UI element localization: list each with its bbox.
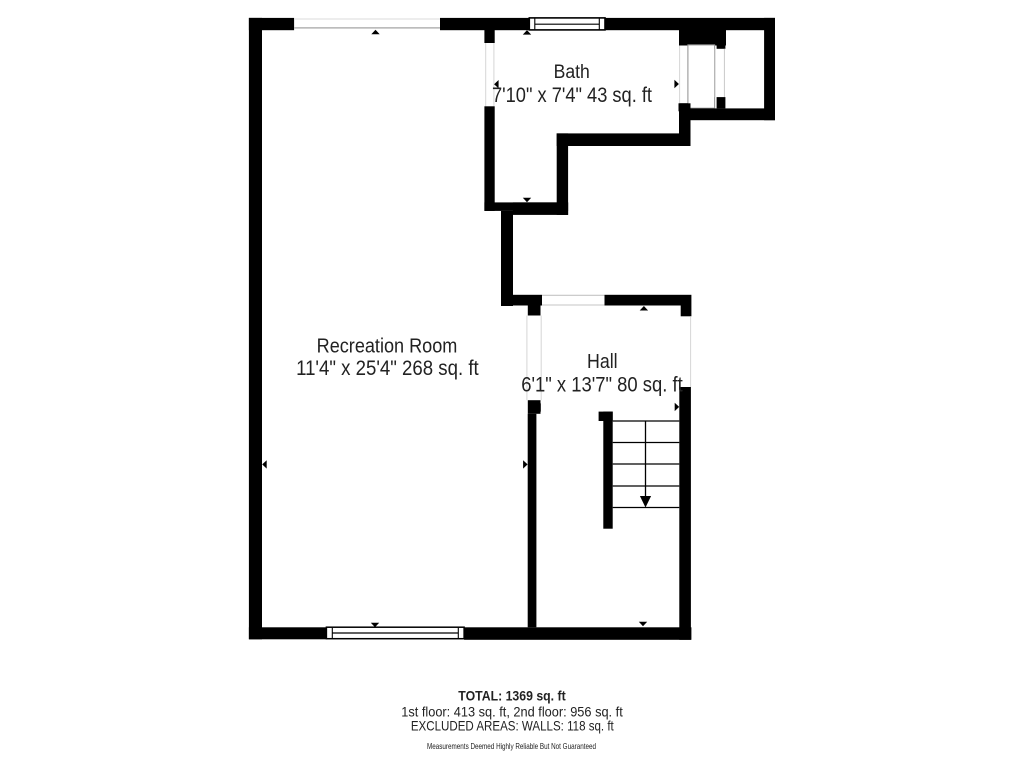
svg-text:Bath: Bath [554,62,590,83]
svg-text:11'4" x 25'4" 268 sq. ft: 11'4" x 25'4" 268 sq. ft [296,357,479,380]
svg-text:Measurements Deemed Highly Rel: Measurements Deemed Highly Reliable But … [427,741,596,751]
svg-text:TOTAL: 1369 sq. ft: TOTAL: 1369 sq. ft [458,689,566,704]
svg-text:EXCLUDED AREAS: WALLS: 118 sq.: EXCLUDED AREAS: WALLS: 118 sq. ft [411,718,614,734]
svg-text:6'1" x 13'7" 80 sq. ft: 6'1" x 13'7" 80 sq. ft [521,374,683,397]
svg-text:7'10" x 7'4" 43 sq. ft: 7'10" x 7'4" 43 sq. ft [492,84,652,107]
svg-text:Recreation Room: Recreation Room [317,335,458,357]
svg-text:Hall: Hall [587,351,618,373]
